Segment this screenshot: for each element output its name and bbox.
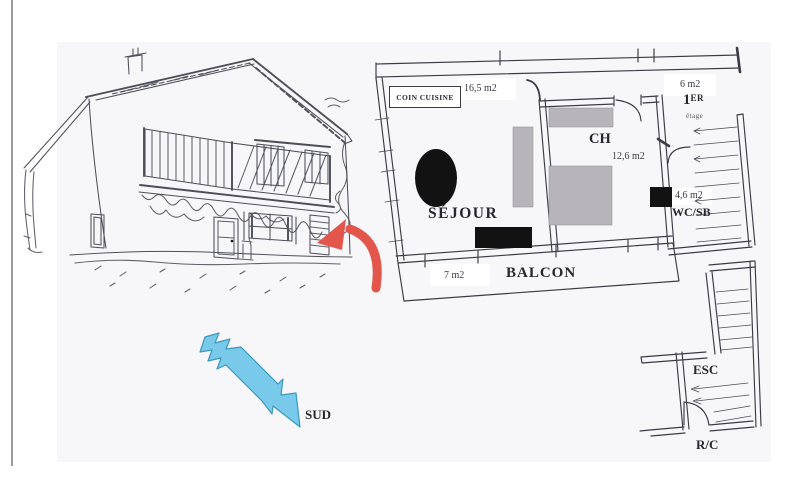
scanned-floor-plan-page: COIN CUISINE 16,5 m2 6 m2 1ER étage CH 1… — [0, 0, 800, 500]
balcony-area-label: 7 m2 — [444, 271, 464, 281]
living-area-label: 16,5 m2 — [464, 84, 497, 94]
stairs-label: ESC — [693, 363, 718, 376]
living-room-label: SÉJOUR — [428, 206, 498, 222]
roof-right-slope — [253, 59, 347, 134]
roof-left-slope — [86, 59, 253, 97]
grass-marks — [95, 266, 325, 293]
ground-floor-label: R/C — [696, 438, 718, 451]
window-sketch — [244, 212, 296, 244]
staircase-esc — [640, 261, 761, 436]
bedroom-area-label: 12,6 m2 — [612, 152, 645, 162]
balcony-sketch — [139, 128, 334, 238]
wall-stairwell-bottom — [668, 241, 752, 255]
house-right-wall — [345, 136, 350, 254]
ch-door-arc — [614, 95, 641, 121]
balcony-label: BALCON — [506, 266, 576, 281]
house-left-wall — [89, 99, 106, 248]
drawing-layer — [0, 0, 800, 500]
dining-table — [415, 149, 457, 207]
entry-door-arc — [527, 80, 540, 100]
chair-sketch — [239, 238, 253, 260]
south-label: SUD — [305, 408, 331, 421]
coin-cuisine-label: COIN CUISINE — [396, 93, 454, 102]
landing-area-label: 6 m2 — [680, 80, 700, 90]
coin-cuisine-box: COIN CUISINE — [389, 86, 461, 108]
red-curved-arrow — [317, 219, 377, 288]
bath-area-label: 4,6 m2 — [675, 191, 703, 201]
south-direction-arrow — [200, 333, 300, 427]
floor-level-sub-label: étage — [686, 113, 703, 120]
staircase-upper-treads — [694, 127, 741, 242]
bedroom-label: CH — [589, 132, 611, 147]
floor-level-label: 1ER — [683, 92, 704, 108]
sideboard — [513, 127, 533, 207]
wall-stairwell-right — [737, 114, 755, 246]
wall-bottom — [396, 236, 673, 263]
wc-fixture — [650, 187, 672, 207]
house-sketch — [24, 48, 352, 293]
sofa-block — [475, 227, 532, 248]
wall-ch-right — [656, 95, 674, 247]
landing-door-arc — [668, 147, 690, 163]
dresser — [549, 108, 613, 127]
bath-label: WC/SB — [672, 206, 711, 218]
chimney — [125, 48, 146, 74]
bed — [549, 166, 612, 225]
